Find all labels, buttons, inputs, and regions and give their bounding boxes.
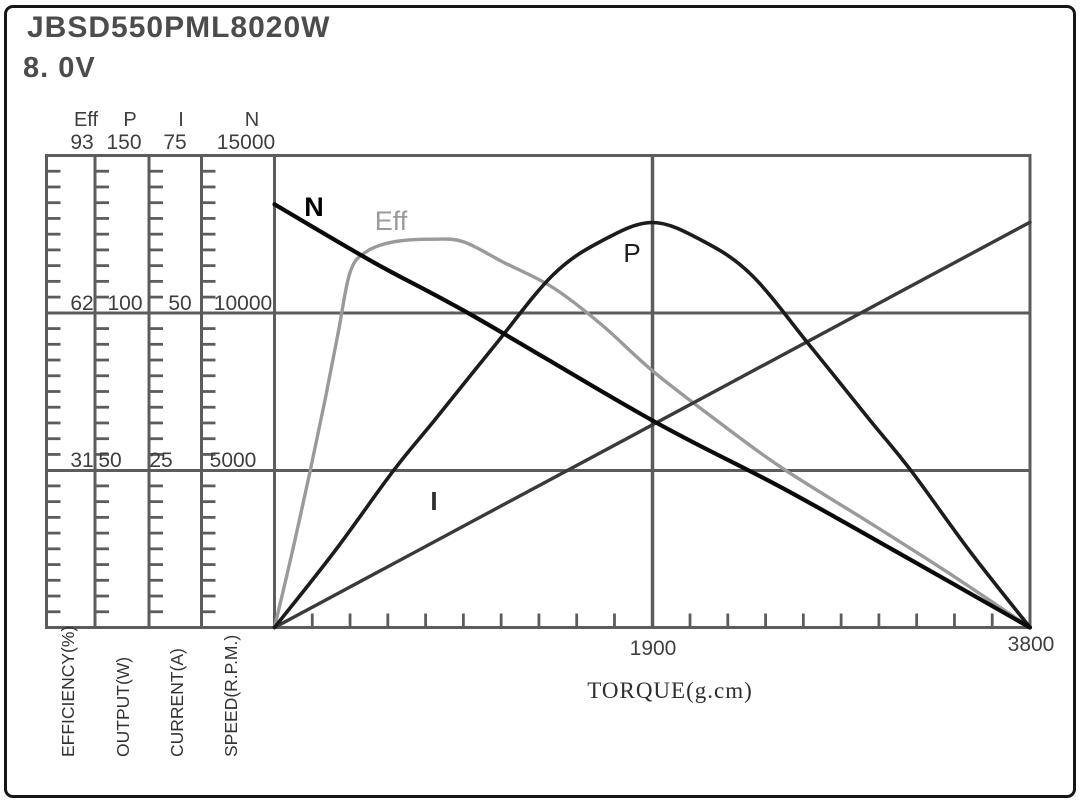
curve-label-current: I <box>430 486 437 516</box>
tick-p-max: 150 <box>106 131 141 154</box>
tick-p-mid: 100 <box>107 292 142 315</box>
tick-n-max: 15000 <box>217 131 275 154</box>
curve-label-power: P <box>623 238 640 268</box>
tick-eff-low: 31 <box>70 449 93 472</box>
tick-i-max: 75 <box>163 131 186 154</box>
tick-n-mid: 10000 <box>214 292 272 315</box>
xtick-1900: 1900 <box>630 637 677 660</box>
xtick-3800: 3800 <box>1008 633 1055 656</box>
tick-n-low: 5000 <box>210 449 257 472</box>
unit-label-output: OUTPUT(W) <box>113 657 133 757</box>
tick-eff-mid: 62 <box>70 292 93 315</box>
x-axis-title: TORQUE(g.cm) <box>587 678 753 703</box>
axis-name-current: I <box>178 109 184 131</box>
axis-name-efficiency: Eff <box>74 109 99 131</box>
curve-label-speed: N <box>304 192 324 222</box>
tick-i-mid: 50 <box>168 292 191 315</box>
axis-name-output: P <box>123 109 136 131</box>
tick-eff-max: 93 <box>70 131 93 154</box>
torque-chart: Eff P I N 93 150 75 15000 62 100 50 1000… <box>0 0 1081 804</box>
tick-p-low: 50 <box>98 449 121 472</box>
unit-label-current: CURRENT(A) <box>167 648 187 757</box>
left-axis-lines <box>95 156 275 628</box>
chart-frame <box>47 156 1031 628</box>
unit-label-efficiency: EFFICIENCY(%) <box>58 626 78 757</box>
grid-lines <box>47 156 1031 628</box>
axis-name-speed: N <box>245 109 259 131</box>
tick-i-low: 25 <box>149 449 172 472</box>
curve-label-efficiency: Eff <box>375 206 408 236</box>
unit-label-speed: SPEED(R.P.M.) <box>221 635 241 757</box>
